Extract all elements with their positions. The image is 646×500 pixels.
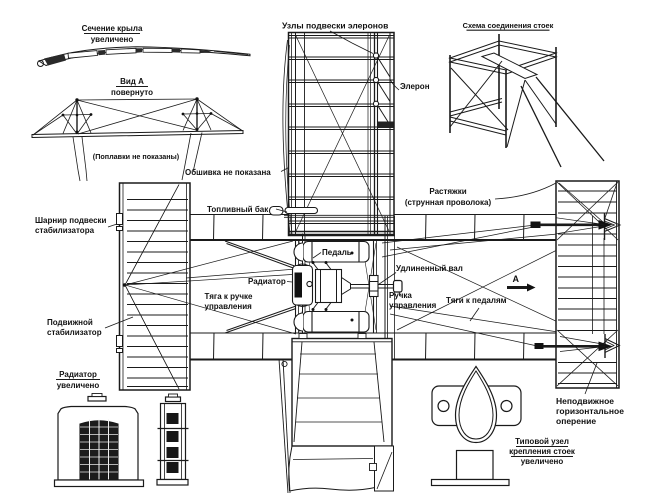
svg-text:Тяги к педалям: Тяги к педалям [446,296,507,305]
svg-text:Типовой узел: Типовой узел [515,437,569,446]
svg-text:Ручка: Ручка [389,291,412,300]
svg-text:Вид А: Вид А [120,77,144,86]
svg-text:Радиатор: Радиатор [59,370,97,379]
svg-text:Подвижной: Подвижной [47,318,93,327]
svg-text:Схема соединения стоек: Схема соединения стоек [463,21,554,30]
svg-text:А: А [513,274,520,284]
svg-text:управления: управления [389,301,437,310]
svg-text:Топливный бак: Топливный бак [207,205,269,214]
svg-text:Тяга к ручке: Тяга к ручке [205,292,253,301]
svg-text:стабилизатор: стабилизатор [47,328,102,337]
svg-text:повернуто: повернуто [111,88,153,97]
svg-text:Шарнир подвески: Шарнир подвески [35,216,107,225]
svg-text:управления: управления [205,302,253,311]
svg-text:(Поплавки не показаны): (Поплавки не показаны) [93,152,180,161]
svg-text:горизонтальное: горизонтальное [556,406,624,416]
svg-text:(струнная проволока): (струнная проволока) [405,198,492,207]
svg-text:Педаль: Педаль [322,248,352,257]
svg-text:стабилизатора: стабилизатора [35,226,95,235]
svg-text:Радиатор: Радиатор [248,277,286,286]
svg-text:крепления стоек: крепления стоек [509,447,576,456]
svg-text:увеличено: увеличено [521,457,564,466]
svg-text:Удлиненный вал: Удлиненный вал [396,264,463,273]
svg-text:оперение: оперение [556,416,596,426]
svg-text:Растяжки: Растяжки [429,187,466,196]
svg-text:Обшивка не показана: Обшивка не показана [185,168,271,177]
svg-text:Узлы подвески элеронов: Узлы подвески элеронов [282,21,388,31]
svg-text:Неподвижное: Неподвижное [556,396,614,406]
svg-text:увеличено: увеличено [57,381,100,390]
svg-text:Элерон: Элерон [400,82,430,91]
svg-text:увеличено: увеличено [91,35,134,44]
svg-text:Сечение крыла: Сечение крыла [82,24,143,33]
